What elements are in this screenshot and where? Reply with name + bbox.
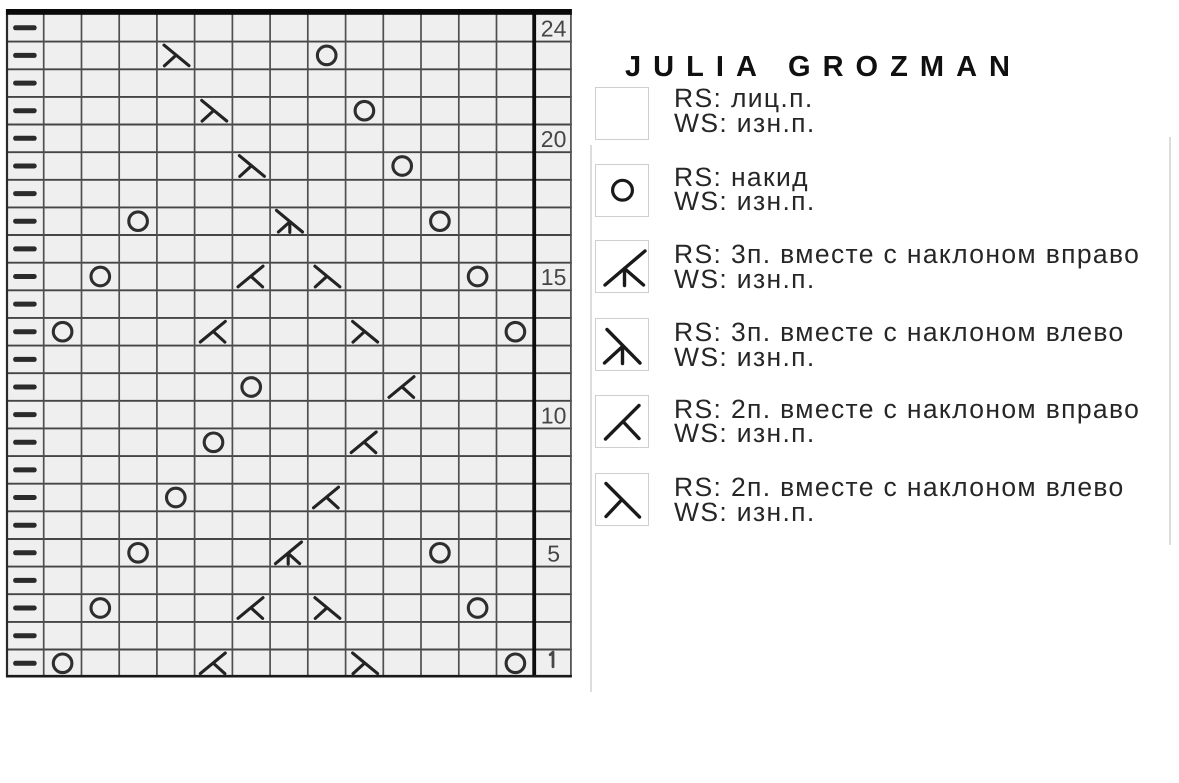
svg-text:20: 20 xyxy=(541,126,567,152)
svg-text:10: 10 xyxy=(541,402,567,428)
svg-text:24: 24 xyxy=(541,16,567,42)
svg-text:5: 5 xyxy=(547,541,560,567)
svg-text:15: 15 xyxy=(541,264,567,290)
